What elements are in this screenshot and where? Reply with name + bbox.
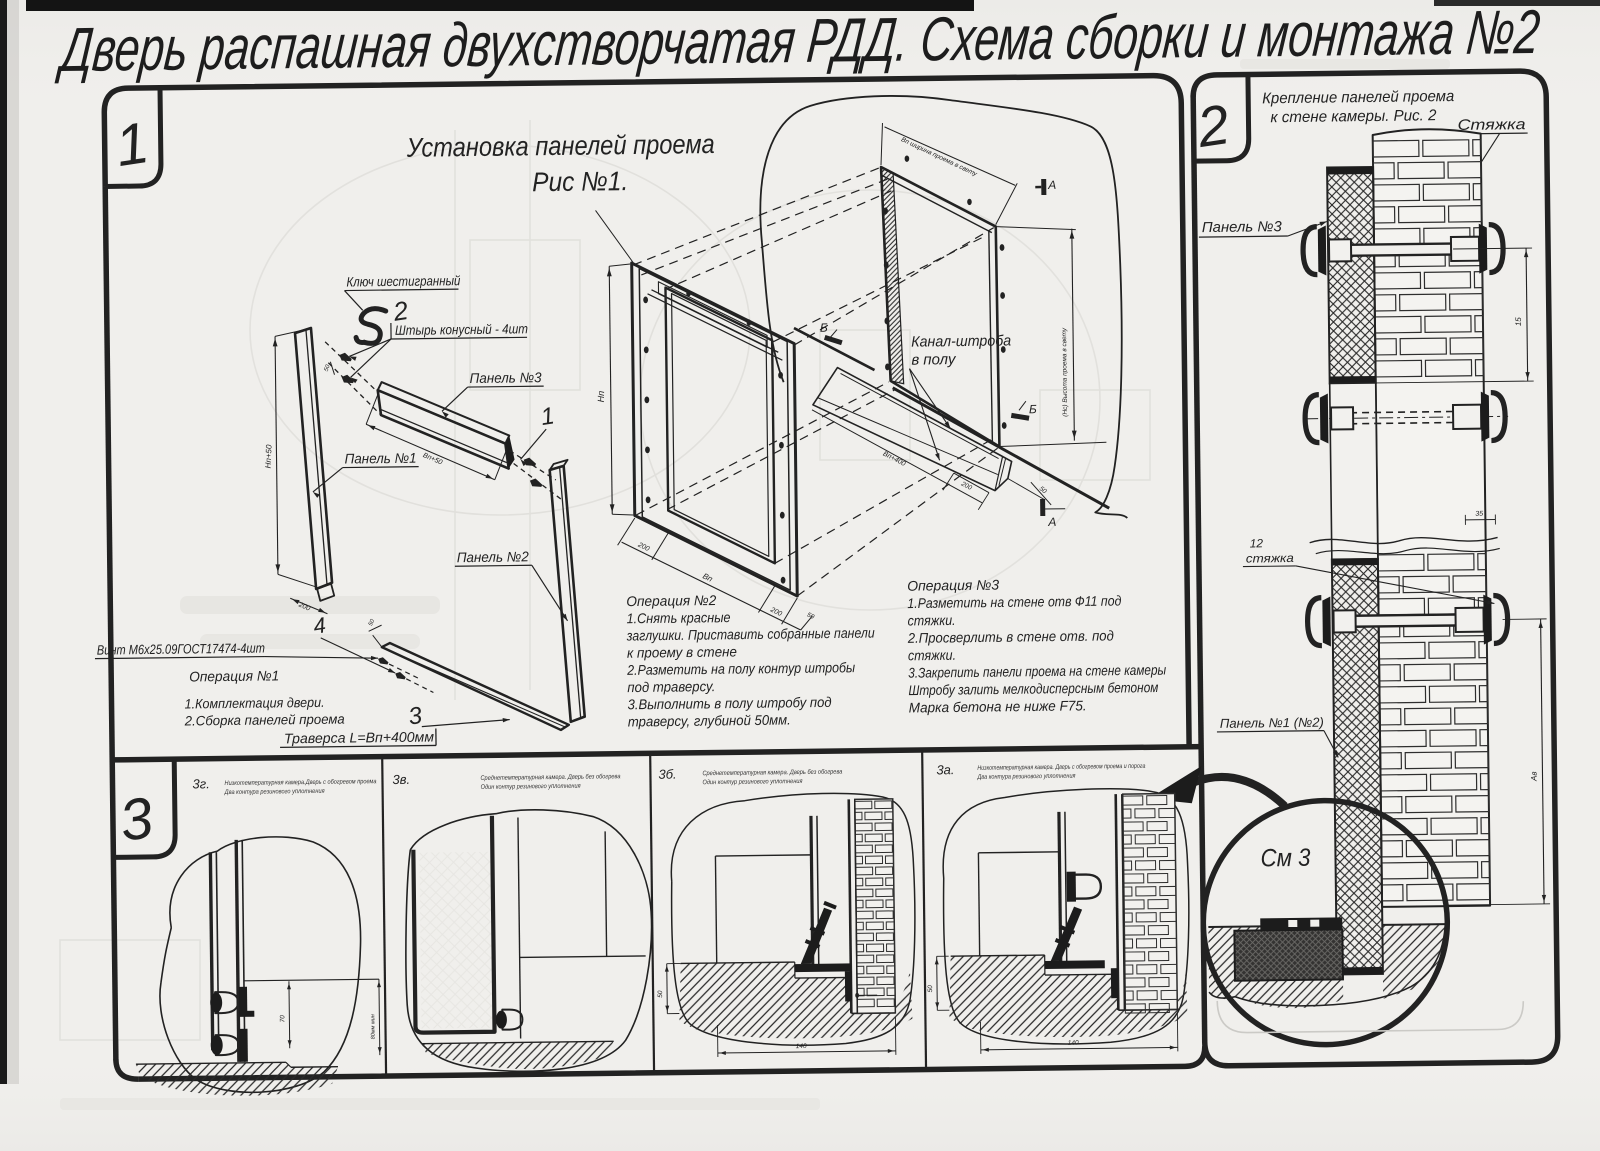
svg-text:35: 35 bbox=[1475, 511, 1483, 518]
svg-text:Б: Б bbox=[820, 321, 828, 335]
svg-text:Операция №3: Операция №3 bbox=[907, 577, 999, 594]
svg-text:к проему в стене: к проему в стене bbox=[627, 643, 737, 660]
svg-text:140: 140 bbox=[796, 1043, 807, 1050]
svg-text:Операция №1: Операция №1 bbox=[189, 667, 279, 684]
svg-text:2.Разметить на полу контур штр: 2.Разметить на полу контур штробы bbox=[626, 659, 856, 678]
svg-text:Панель №1 (№2): Панель №1 (№2) bbox=[1220, 715, 1324, 731]
svg-text:А: А bbox=[1047, 515, 1056, 529]
svg-text:1.Снять красные: 1.Снять красные bbox=[626, 609, 730, 626]
svg-text:3.Закрепить панели проема на с: 3.Закрепить панели проема на стене камер… bbox=[908, 662, 1167, 681]
svg-text:См 3: См 3 bbox=[1260, 844, 1310, 873]
svg-text:2.Сборка панелей проема: 2.Сборка панелей проема bbox=[184, 712, 346, 729]
svg-text:Один контур резинового уплотне: Один контур резинового уплотнения bbox=[481, 782, 582, 791]
svg-text:3в.: 3в. bbox=[392, 772, 410, 787]
svg-text:стяжка: стяжка bbox=[1246, 551, 1295, 566]
svg-text:в полу: в полу bbox=[911, 351, 957, 369]
svg-text:под траверсу.: под траверсу. bbox=[627, 678, 715, 695]
svg-text:Траверса L=Вп+400мм: Траверса L=Вп+400мм bbox=[284, 728, 435, 746]
svg-text:стяжки.: стяжки. bbox=[908, 647, 956, 664]
svg-text:Панель №1: Панель №1 bbox=[344, 450, 416, 467]
svg-text:Ав: Ав bbox=[1529, 771, 1538, 782]
svg-text:2.Просверлить в стене отв. по: 2.Просверлить в стене отв. под bbox=[907, 627, 1114, 646]
svg-text:Марка бетона не ниже F75.: Марка бетона не ниже F75. bbox=[909, 697, 1087, 715]
svg-text:(Нс) Высота проема в свету: (Нс) Высота проема в свету bbox=[1061, 327, 1069, 417]
svg-text:А: А bbox=[1047, 178, 1056, 192]
svg-text:Рис №1.: Рис №1. bbox=[532, 166, 628, 197]
svg-text:70: 70 bbox=[279, 1015, 286, 1023]
svg-text:50: 50 bbox=[657, 990, 664, 998]
svg-text:3а.: 3а. bbox=[936, 762, 954, 777]
svg-text:Ключ шестигранный: Ключ шестигранный bbox=[346, 273, 461, 289]
svg-text:Один контур резинового уплотне: Один контур резинового уплотнения bbox=[702, 777, 803, 786]
svg-text:3б.: 3б. bbox=[658, 767, 676, 782]
svg-text:12: 12 bbox=[1250, 536, 1264, 550]
svg-text:80мм мин: 80мм мин bbox=[370, 1014, 376, 1039]
svg-text:140: 140 bbox=[1068, 1040, 1079, 1047]
svg-text:Панель №2: Панель №2 bbox=[457, 548, 529, 565]
svg-text:Операция №2: Операция №2 bbox=[626, 592, 716, 609]
svg-text:Б: Б bbox=[1029, 402, 1037, 416]
svg-text:Нп: Нп bbox=[596, 391, 606, 403]
svg-text:Установка панелей проема: Установка панелей проема bbox=[406, 129, 715, 163]
svg-text:Штырь конусный - 4шт: Штырь конусный - 4шт bbox=[395, 321, 528, 338]
svg-text:Два контура резинового уплотне: Два контура резинового уплотнения bbox=[977, 773, 1076, 781]
svg-text:Канал-штроба: Канал-штроба bbox=[911, 332, 1011, 350]
svg-text:1.Комплектация двери.: 1.Комплектация двери. bbox=[184, 695, 324, 712]
svg-text:50: 50 bbox=[927, 985, 934, 993]
svg-text:Винт М6х25.09ГОСТ17474-4шт: Винт М6х25.09ГОСТ17474-4шт bbox=[97, 641, 265, 658]
svg-text:к стене камеры. Рис. 2: к стене камеры. Рис. 2 bbox=[1270, 107, 1437, 126]
svg-text:3.Выполнить в полу штробу под: 3.Выполнить в полу штробу под bbox=[627, 694, 831, 712]
svg-text:3г.: 3г. bbox=[192, 776, 209, 791]
svg-text:Панель №3: Панель №3 bbox=[1202, 219, 1282, 236]
svg-text:1.Разметить на стене отв Ф11 п: 1.Разметить на стене отв Ф11 под bbox=[907, 592, 1121, 611]
svg-text:Нп+50: Нп+50 bbox=[264, 444, 274, 469]
svg-text:заглушки. Приставить собранные: заглушки. Приставить собранные панели bbox=[626, 624, 875, 643]
svg-text:Крепление панелей проема: Крепление панелей проема bbox=[1262, 88, 1455, 107]
svg-text:Штробу залить мелкодисперсным: Штробу залить мелкодисперсным бетоном bbox=[908, 679, 1159, 698]
svg-text:Панель №3: Панель №3 bbox=[469, 369, 541, 386]
svg-text:стяжки.: стяжки. bbox=[907, 612, 955, 629]
svg-text:Два контура резинового уплотне: Два контура резинового уплотнения bbox=[224, 788, 325, 796]
svg-text:15: 15 bbox=[1514, 317, 1523, 327]
svg-text:траверсу, глубиной 50мм.: траверсу, глубиной 50мм. bbox=[628, 712, 791, 730]
